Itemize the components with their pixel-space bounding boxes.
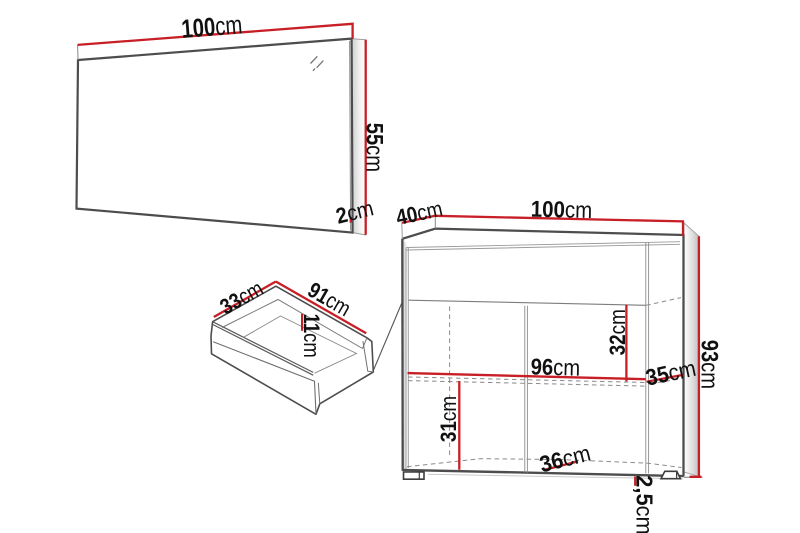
- svg-text:100cm: 100cm: [180, 10, 243, 44]
- svg-text:93cm: 93cm: [696, 340, 723, 389]
- svg-text:100cm: 100cm: [530, 195, 592, 223]
- svg-text:11cm: 11cm: [299, 314, 323, 358]
- svg-text:2,5cm: 2,5cm: [631, 475, 657, 533]
- svg-text:32cm: 32cm: [606, 309, 631, 355]
- svg-text:96cm: 96cm: [530, 353, 580, 381]
- svg-text:55cm: 55cm: [361, 123, 388, 172]
- svg-text:31cm: 31cm: [436, 396, 461, 442]
